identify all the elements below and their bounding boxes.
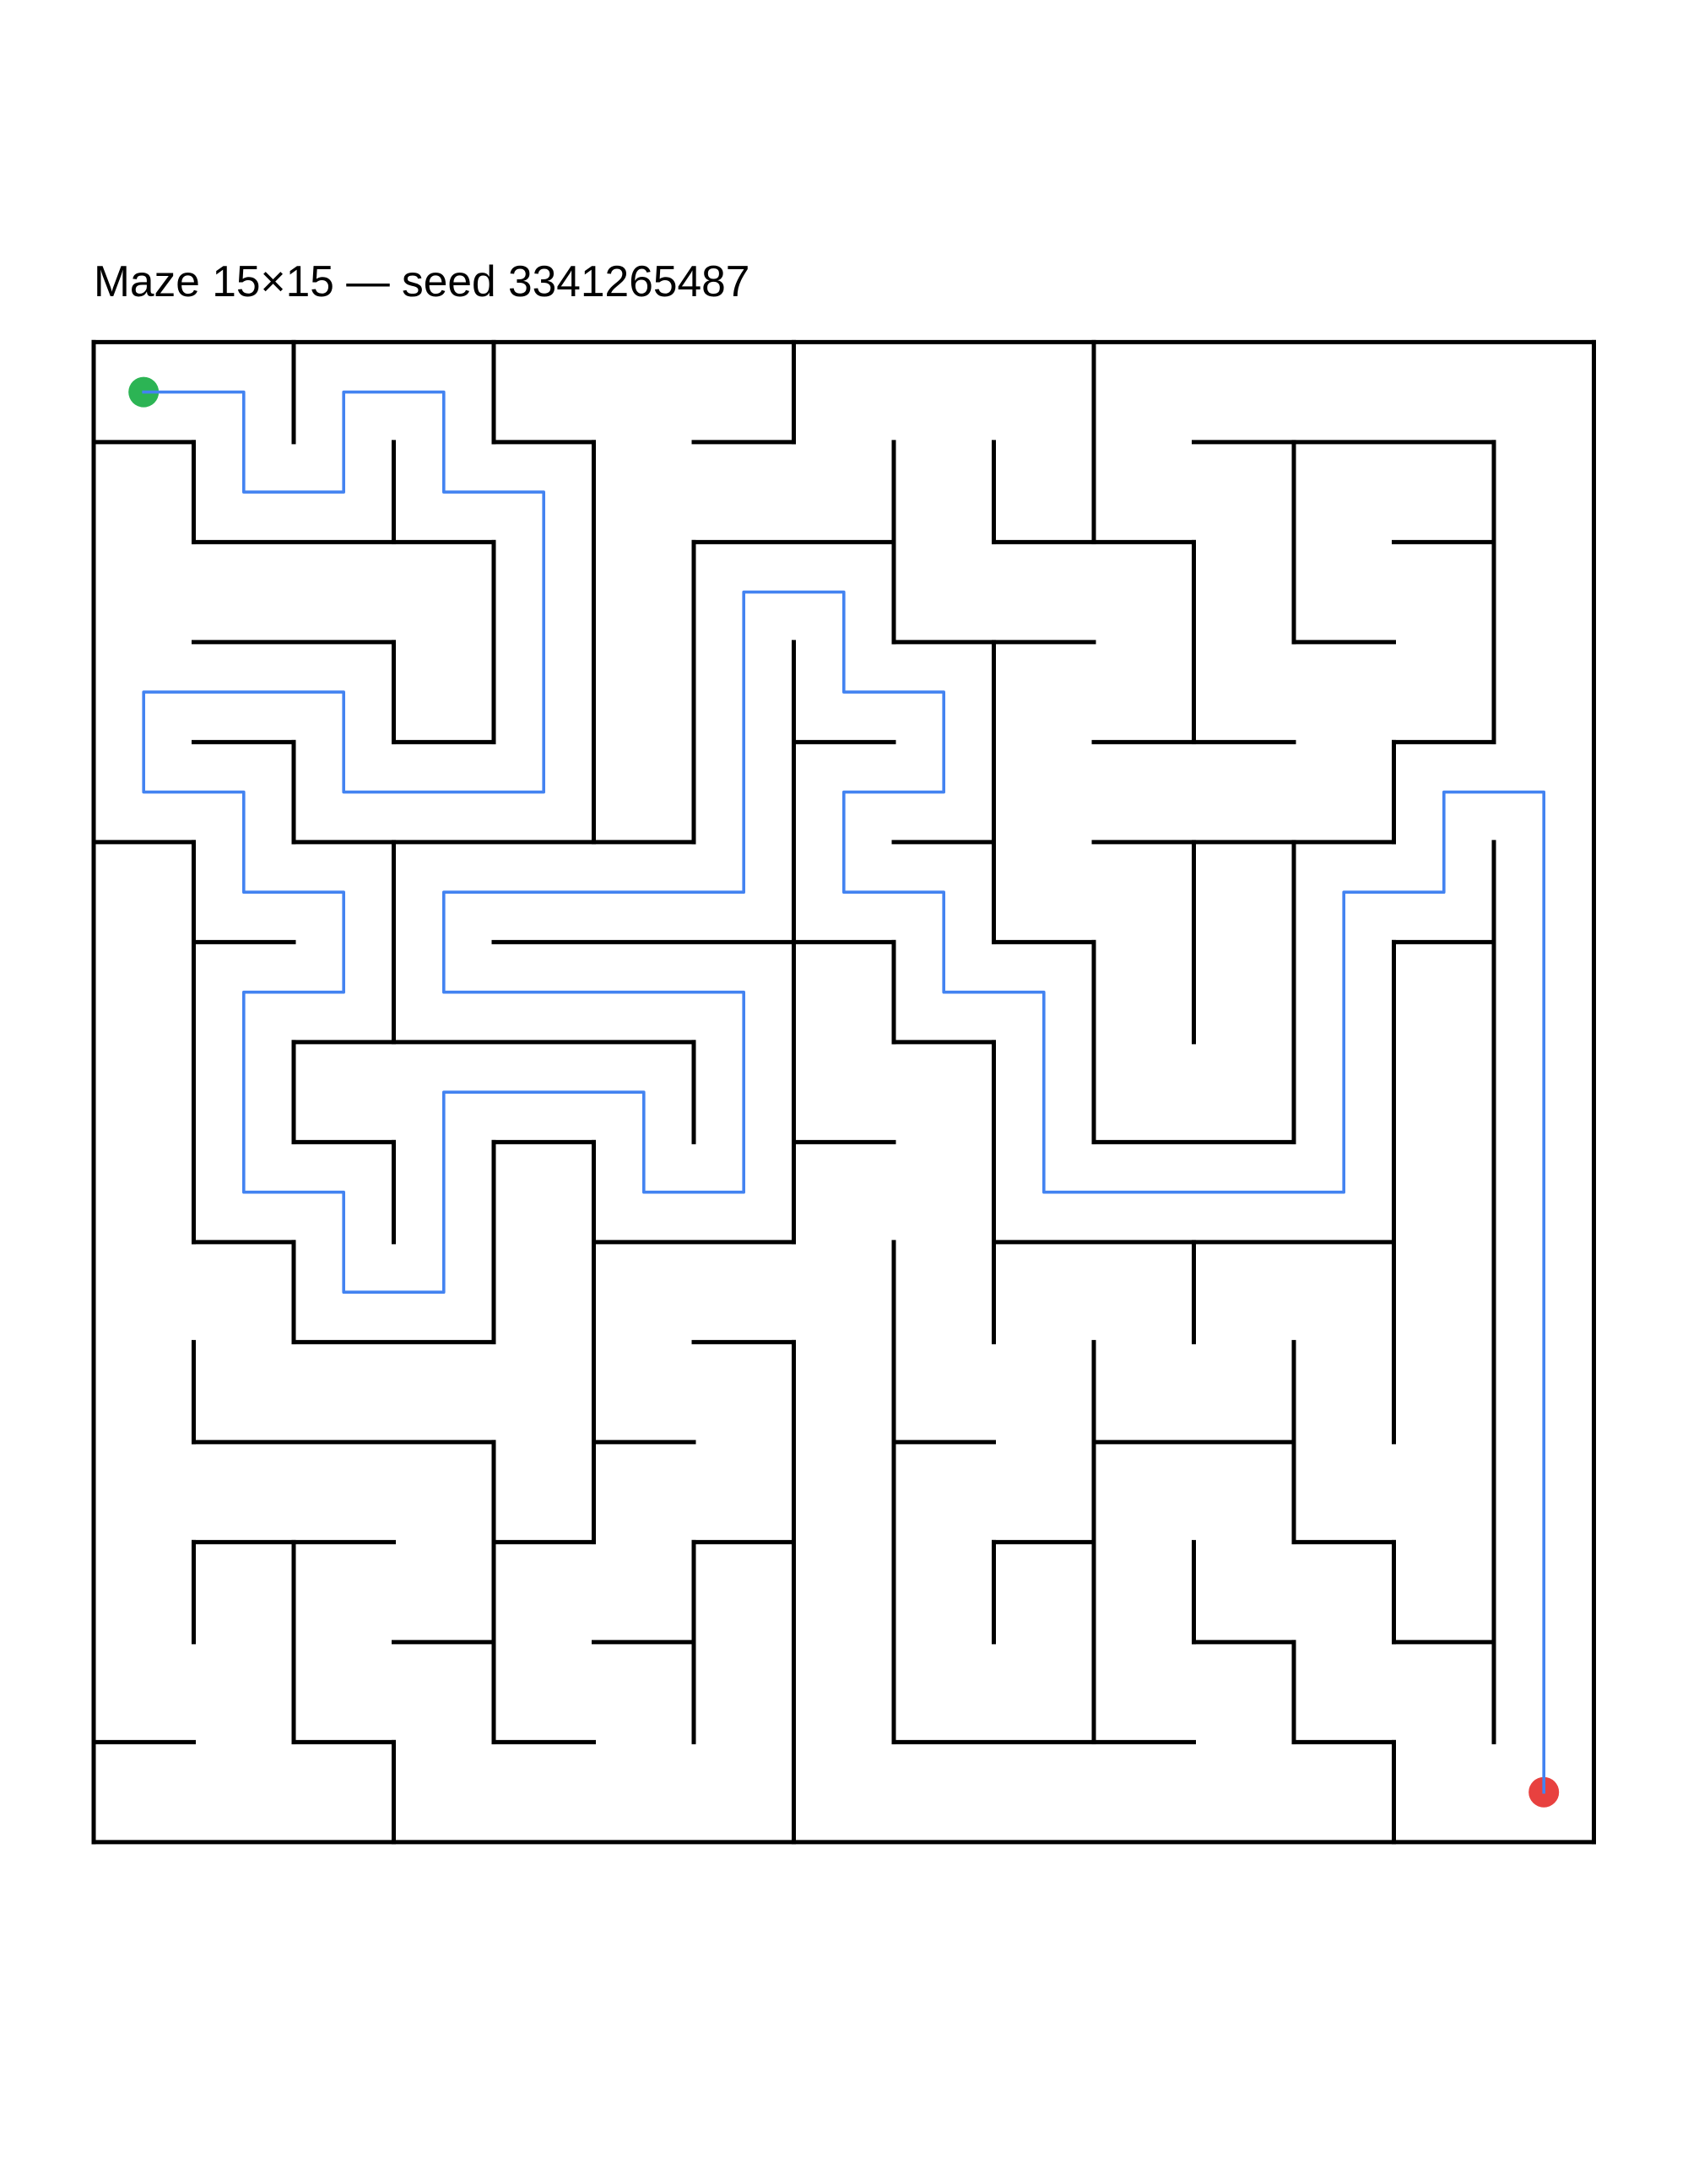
svg-text:Maze 15×15 — seed 3341265487: Maze 15×15 — seed 3341265487 — [94, 257, 749, 305]
